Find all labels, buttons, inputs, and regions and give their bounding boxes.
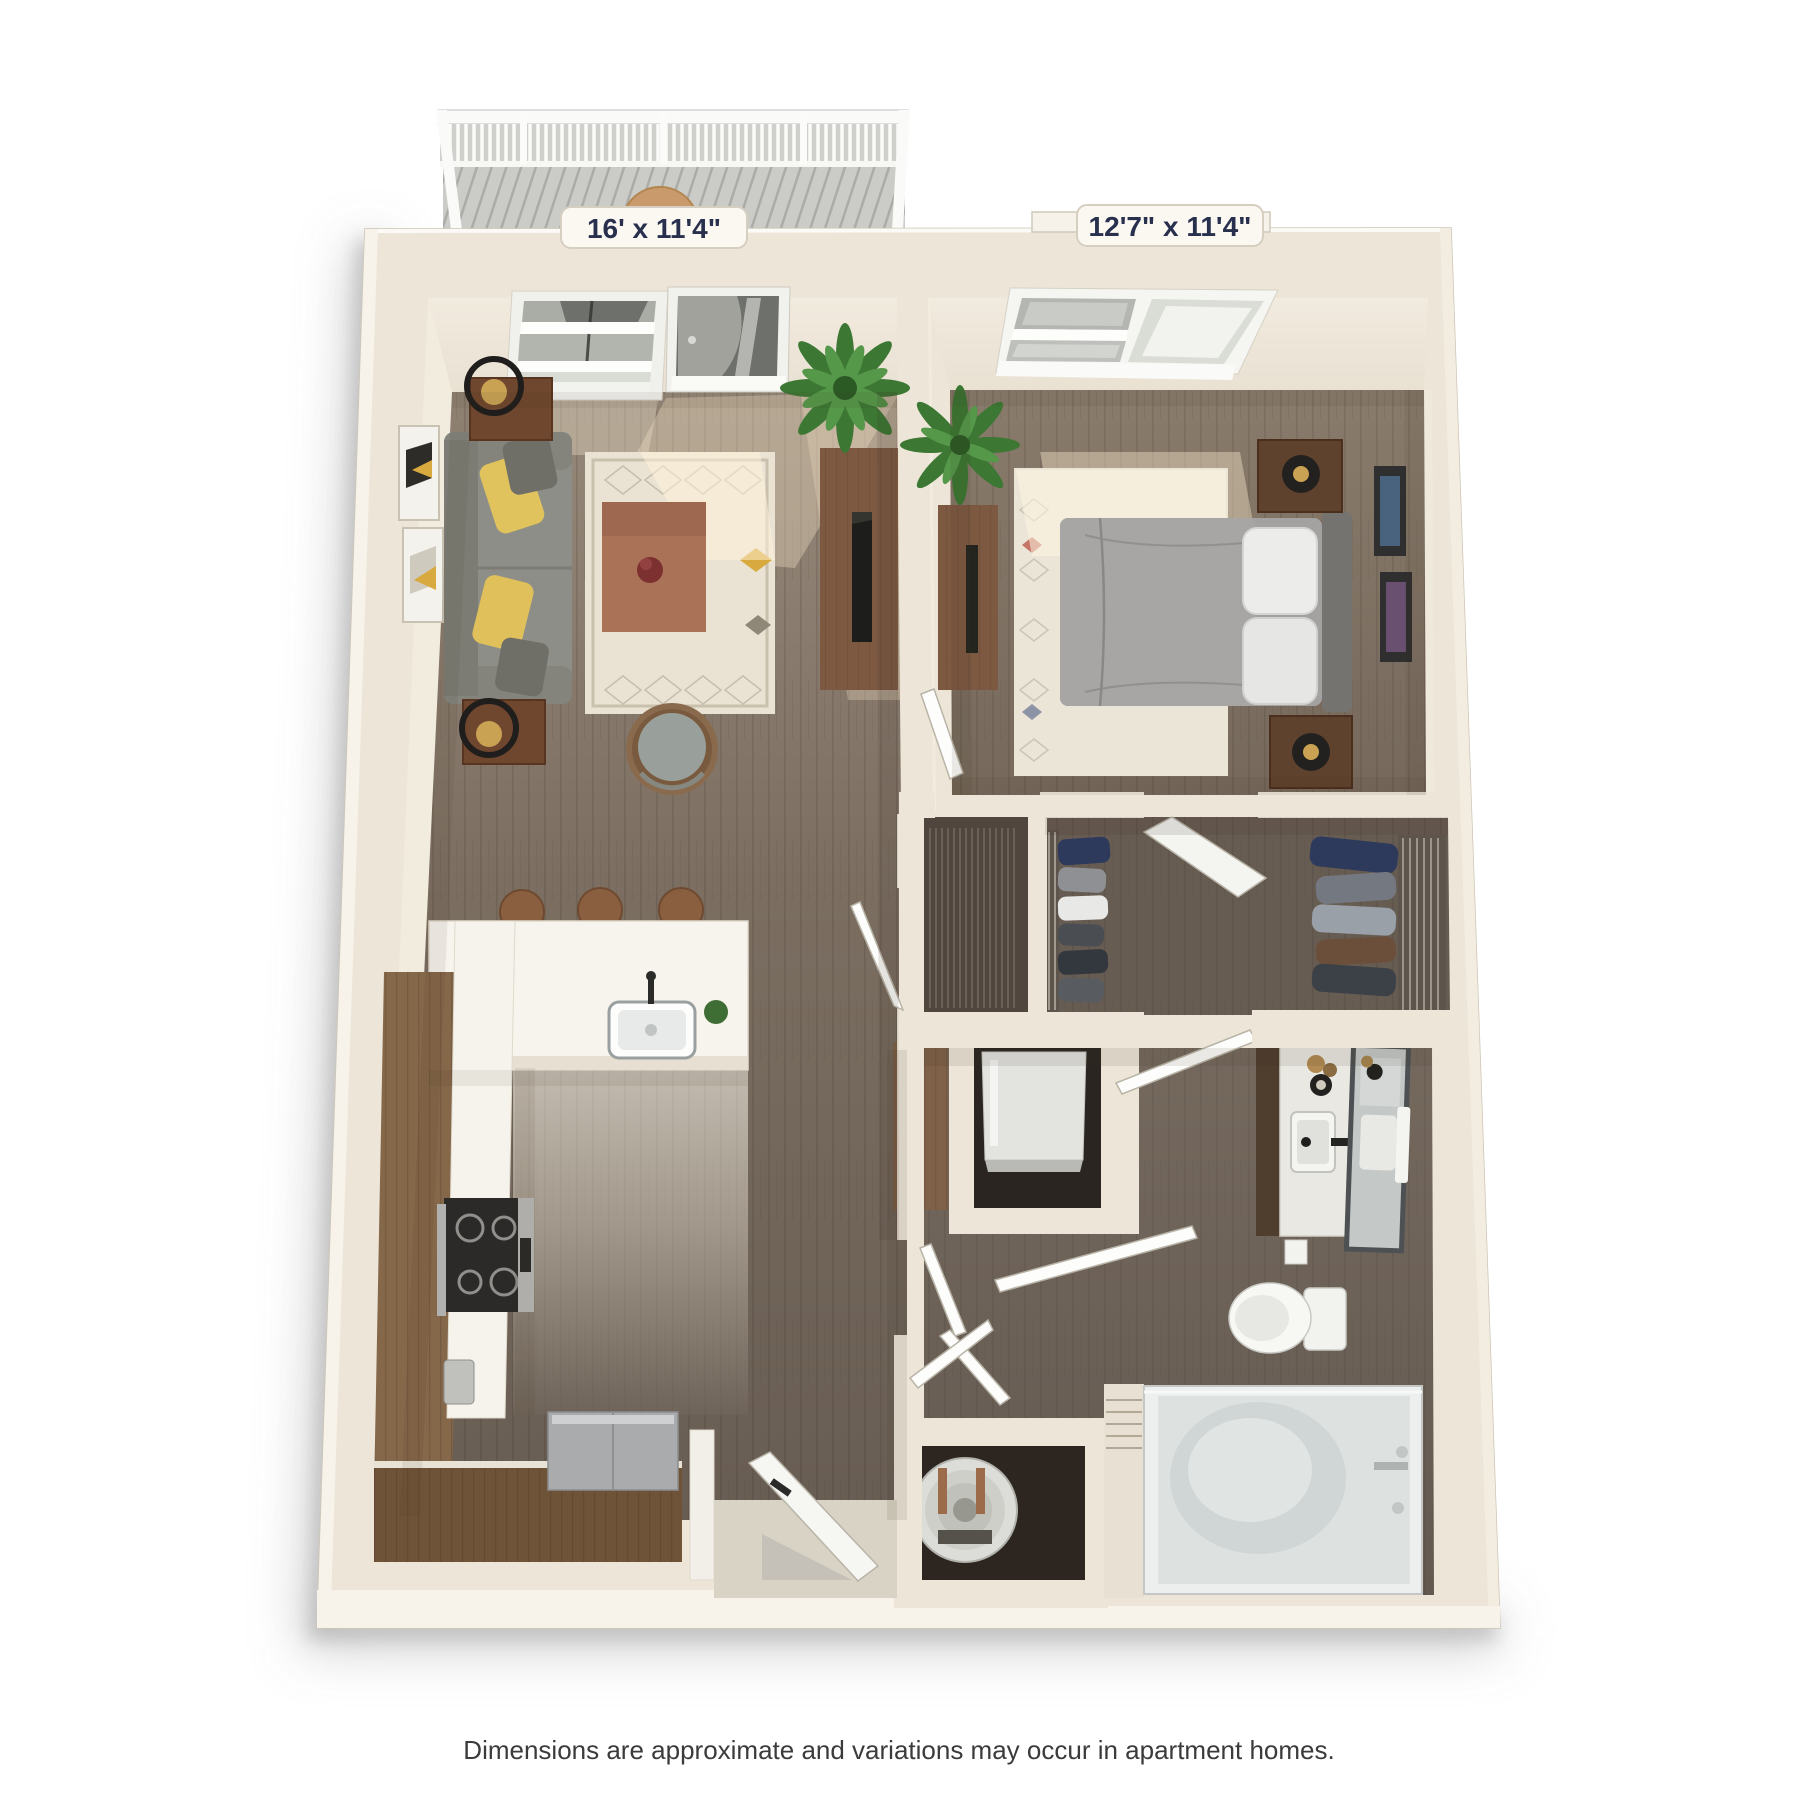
svg-text:12'7" x 11'4": 12'7" x 11'4" — [1089, 211, 1252, 242]
svg-text:16' x 11'4": 16' x 11'4" — [587, 213, 721, 244]
svg-text:Dimensions are approximate and: Dimensions are approximate and variation… — [463, 1735, 1334, 1765]
